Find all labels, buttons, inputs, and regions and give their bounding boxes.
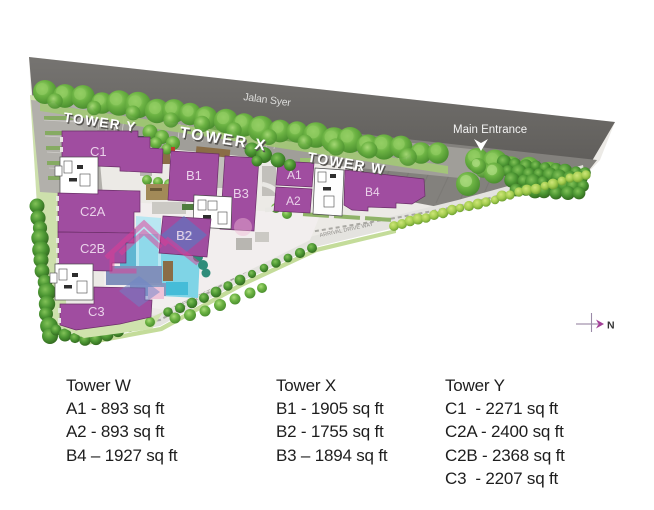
svg-text:C2B: C2B (80, 241, 105, 256)
svg-text:C3: C3 (88, 304, 105, 319)
svg-text:B2: B2 (176, 228, 192, 243)
svg-text:B3: B3 (233, 186, 249, 201)
svg-text:B4: B4 (365, 185, 380, 199)
svg-text:A2: A2 (286, 194, 301, 208)
svg-text:Main Entrance: Main Entrance (453, 124, 527, 136)
svg-text:C2A: C2A (80, 204, 106, 219)
svg-text:N: N (607, 320, 615, 332)
svg-text:B1: B1 (186, 168, 202, 183)
